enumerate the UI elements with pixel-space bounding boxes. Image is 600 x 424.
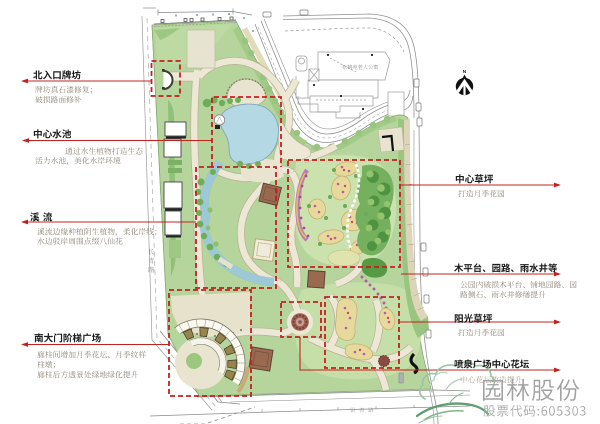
svg-text:N: N: [463, 69, 467, 75]
